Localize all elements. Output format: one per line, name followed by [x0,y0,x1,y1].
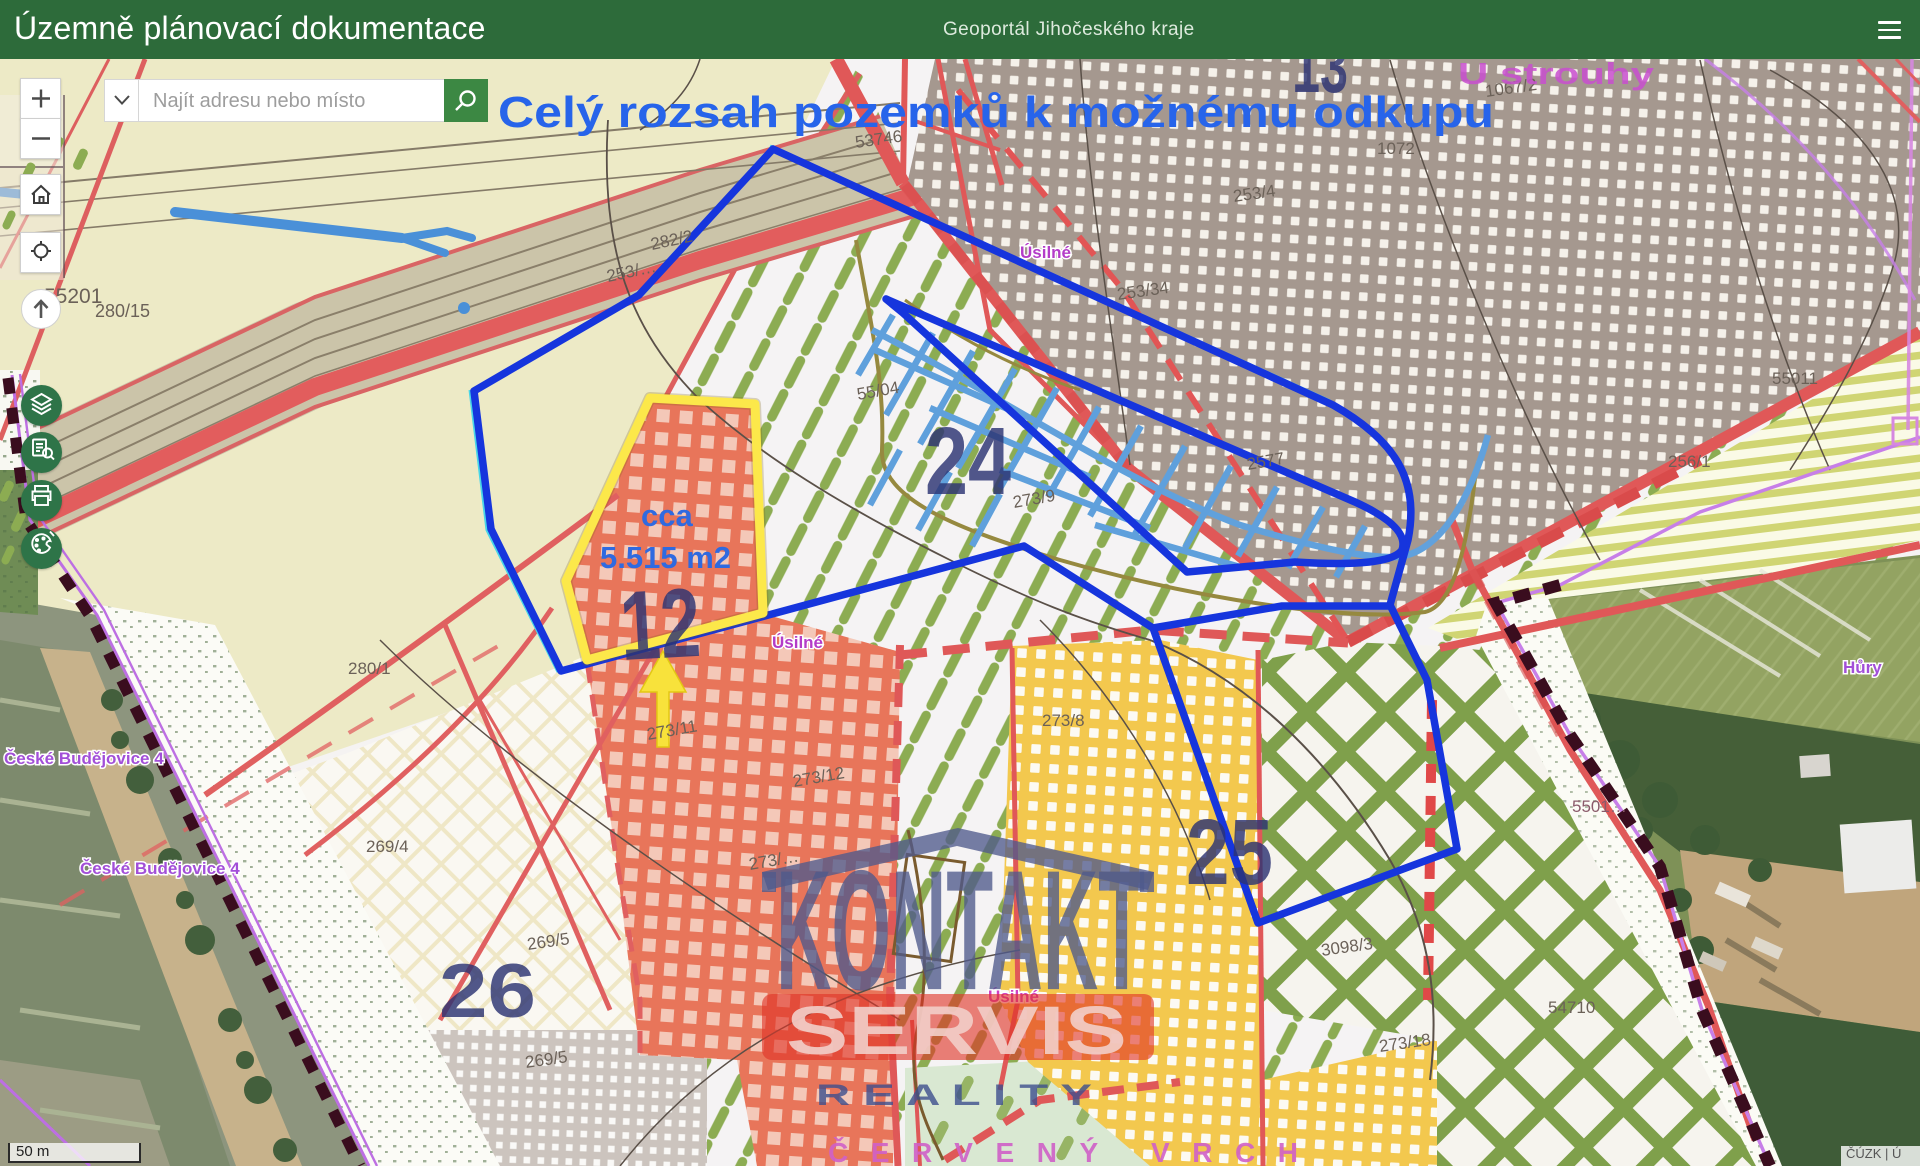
svg-text:26: 26 [439,949,536,1034]
svg-text:24: 24 [925,408,1011,515]
svg-text:SERVIS: SERVIS [786,992,1127,1069]
svg-text:cca: cca [641,498,693,533]
svg-text:Celý rozsah pozemků k možnému: Celý rozsah pozemků k možnému odkupu [498,88,1494,137]
svg-text:R E A L I T Y: R E A L I T Y [816,1079,1092,1112]
svg-text:25: 25 [1186,800,1273,904]
svg-text:12: 12 [617,567,703,681]
svg-text:České Budějovice 4: České Budějovice 4 [4,749,164,768]
svg-text:U strouhy: U strouhy [1458,56,1655,91]
svg-text:280/15: 280/15 [95,301,150,321]
svg-text:Hůry: Hůry [1843,658,1882,677]
svg-text:5501…: 5501… [1572,797,1627,816]
svg-text:Úsilné: Úsilné [772,633,823,652]
svg-text:1072: 1072 [1377,139,1415,158]
svg-text:55011: 55011 [1772,369,1818,388]
svg-text:54710: 54710 [1548,998,1595,1017]
svg-text:269/4: 269/4 [366,837,409,856]
svg-text:280/1: 280/1 [348,659,391,678]
svg-text:273/8: 273/8 [1042,711,1085,730]
svg-text:256/1: 256/1 [1668,452,1711,471]
svg-text:České Budějovice 4: České Budějovice 4 [80,859,240,878]
svg-text:Úsilné: Úsilné [1020,243,1071,262]
svg-text:5.515 m2: 5.515 m2 [600,540,731,575]
